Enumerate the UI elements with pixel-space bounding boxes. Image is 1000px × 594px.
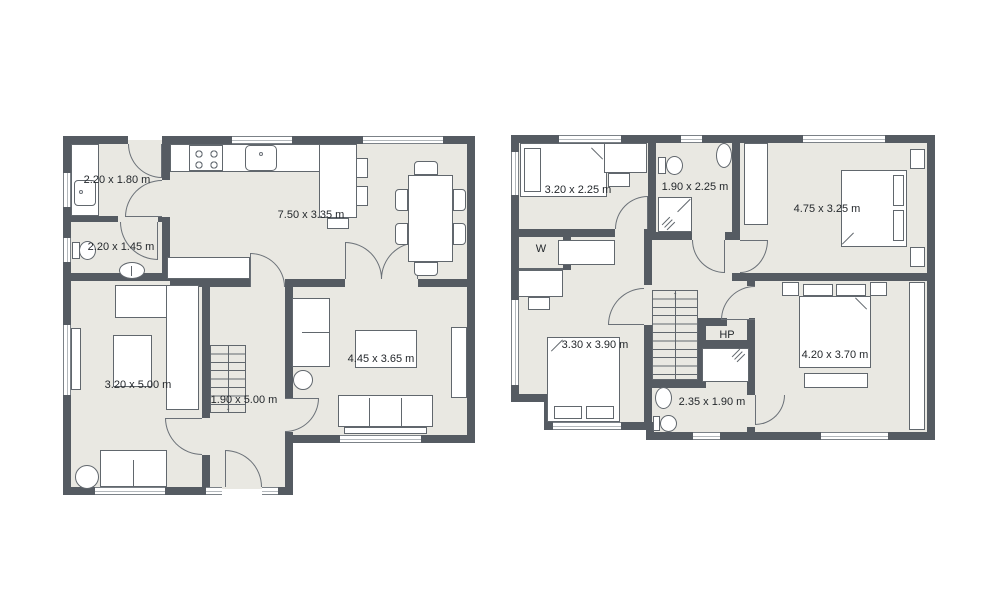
window [340, 435, 421, 443]
wall [63, 136, 71, 173]
floor-plan-ground: ↓ [63, 132, 475, 499]
wall [63, 136, 128, 144]
room-label-bathroom: 1.90 x 2.25 m [662, 181, 729, 193]
wall [63, 207, 71, 238]
window [821, 432, 888, 440]
wall [732, 135, 740, 240]
window [693, 432, 720, 440]
wall [720, 432, 821, 440]
basin-icon [119, 262, 145, 279]
kitchen-sink-icon [245, 145, 277, 171]
chair [414, 262, 438, 276]
kitchen-island [319, 144, 357, 218]
chair [453, 189, 466, 211]
toilet-icon [653, 416, 660, 431]
wall [202, 455, 210, 487]
window [95, 487, 165, 495]
window [553, 422, 621, 430]
faucet-icon [79, 190, 83, 194]
window [511, 300, 519, 385]
floor-plan-first: ↑ [511, 135, 935, 440]
wall [747, 427, 755, 440]
wall [927, 135, 935, 440]
wall [656, 232, 692, 240]
wall [285, 279, 345, 287]
toilet-icon [660, 415, 677, 432]
wall [467, 136, 475, 443]
pillow [836, 284, 866, 296]
pillow [803, 284, 833, 296]
window [363, 136, 443, 144]
room-label-wardrobe: W [536, 243, 546, 255]
desk [518, 270, 563, 297]
basin-icon [655, 387, 672, 409]
sofa-cushion-line [133, 460, 134, 486]
wall [418, 279, 467, 287]
nightstand [870, 282, 887, 296]
desk [604, 143, 647, 173]
stove-icon [189, 145, 223, 171]
wall [644, 325, 652, 422]
bench [804, 373, 868, 388]
basin-icon [716, 143, 732, 168]
corner-sofa [166, 285, 199, 410]
window [232, 136, 292, 144]
wall [71, 216, 118, 222]
wall [202, 281, 210, 418]
wall [544, 422, 553, 430]
chair [414, 161, 438, 175]
chimney-breast [71, 328, 81, 390]
wall [644, 380, 698, 388]
window-sidelight [206, 487, 222, 495]
room-label-utility: 2.20 x 1.80 m [84, 174, 151, 186]
room-label-kitchen-diner: 7.50 x 3.35 m [278, 209, 345, 221]
faucet-icon [259, 152, 263, 156]
room-label-bedroom-3: 4.20 x 3.70 m [802, 349, 869, 361]
wall [648, 135, 656, 240]
window [63, 238, 71, 262]
wall [63, 262, 71, 325]
side-table [293, 370, 313, 390]
toilet-icon [658, 157, 666, 174]
room-label-family-room: 4.45 x 3.65 m [348, 353, 415, 365]
pillow [554, 406, 582, 419]
pillow [586, 406, 614, 419]
room-label-living-room: 3.20 x 5.00 m [105, 379, 172, 391]
nightstand [910, 247, 925, 267]
sofa-cushion-line [369, 398, 370, 426]
wall [654, 432, 693, 440]
room-label-bedroom-1: 3.20 x 2.25 m [545, 184, 612, 196]
stool [356, 186, 368, 206]
room-label-master-bedroom: 4.75 x 3.25 m [794, 203, 861, 215]
room-label-wc: 2.20 x 1.45 m [88, 241, 155, 253]
wall [285, 432, 293, 495]
pillow [893, 175, 904, 206]
window-sidelight [262, 487, 278, 495]
nightstand [782, 282, 799, 296]
chair [395, 189, 408, 211]
sofa-cushion-line [302, 332, 329, 333]
dining-table [408, 175, 453, 262]
wall [292, 136, 363, 144]
room-label-bedroom-2: 3.30 x 3.90 m [562, 339, 629, 351]
wall [63, 395, 71, 495]
pillow [524, 148, 541, 192]
wardrobe [909, 282, 925, 430]
wall [165, 487, 206, 495]
window [559, 135, 621, 143]
window [511, 152, 519, 195]
wall [511, 135, 519, 152]
floorplan-canvas: ↓ [0, 0, 1000, 594]
sideboard [167, 257, 250, 279]
stairs-rail [675, 291, 676, 379]
chair [395, 223, 408, 245]
window [803, 135, 885, 143]
shelf-unit [451, 327, 467, 398]
wall [732, 273, 927, 281]
room-label-hot-press: HP [719, 329, 734, 341]
wall [285, 435, 340, 443]
pillow [893, 210, 904, 241]
wall [162, 136, 170, 180]
chair [453, 223, 466, 245]
room-label-shower-room: 2.35 x 1.90 m [679, 396, 746, 408]
sofa-base [344, 427, 427, 434]
stool [356, 158, 368, 178]
stairs-up-arrow-icon: ↑ [673, 291, 678, 301]
sofa-cushion-line [401, 398, 402, 426]
wardrobe [558, 240, 615, 265]
bathtub-icon [702, 348, 749, 382]
window [681, 135, 702, 143]
wardrobe [744, 143, 768, 225]
nightstand [910, 149, 925, 169]
window [63, 325, 71, 395]
wall [162, 136, 232, 144]
sofa [338, 395, 433, 427]
side-table [75, 465, 99, 489]
wall [702, 135, 803, 143]
window [63, 173, 71, 207]
chair [528, 297, 550, 310]
room-label-hallway: 1.90 x 5.00 m [211, 394, 278, 406]
toilet-icon [666, 156, 683, 175]
wall [644, 229, 652, 285]
basin-detail [131, 266, 132, 276]
wall [421, 435, 475, 443]
staircase: ↑ [652, 290, 698, 380]
